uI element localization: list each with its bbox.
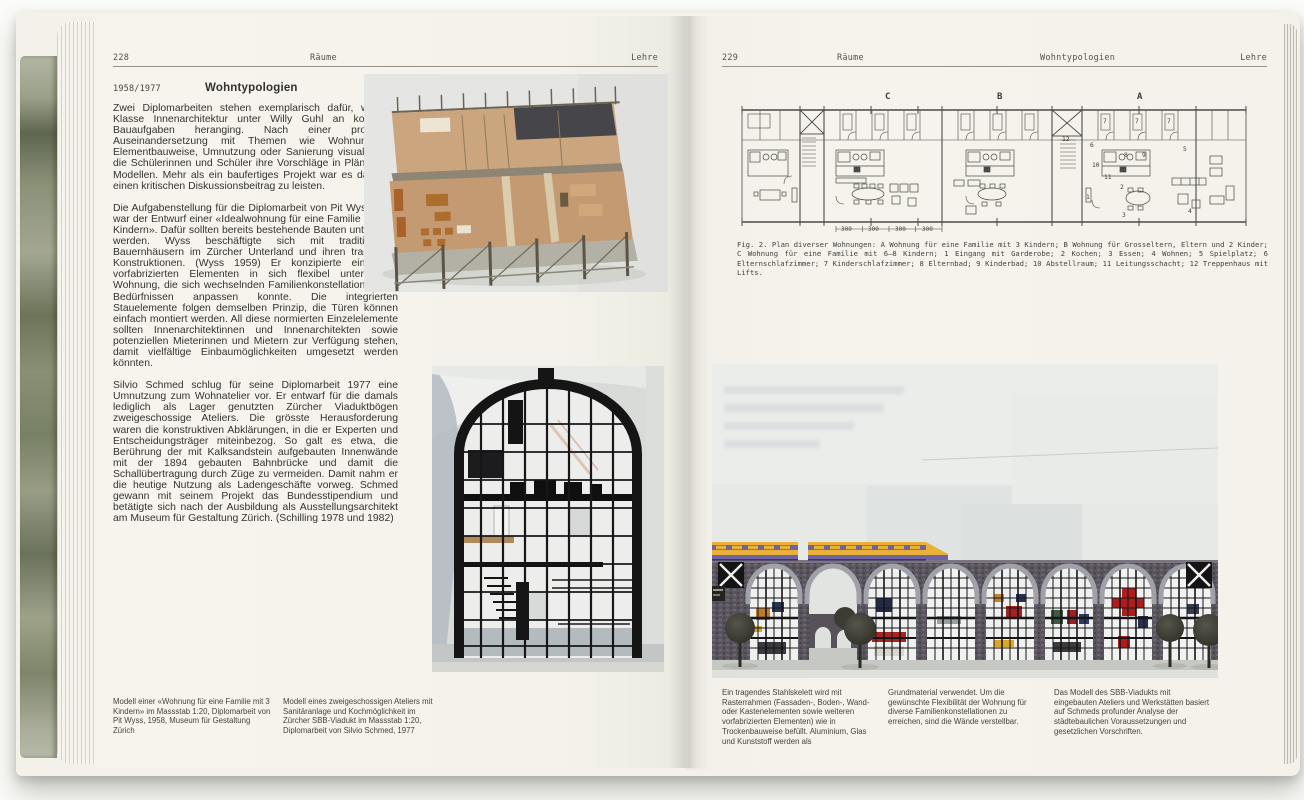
left-running-head-right: Lehre	[631, 53, 658, 63]
left-running-head-center: Räume	[310, 53, 337, 63]
body-text-column: Zwei Diplomarbeiten stehen exemplarisch …	[113, 103, 398, 535]
x-brace-left	[718, 562, 744, 588]
plan-room-number: 5	[1183, 146, 1187, 153]
x-brace-right	[1186, 562, 1212, 588]
plan-room-number: 8	[1124, 152, 1128, 159]
left-page-number: 228	[113, 53, 129, 63]
plan-room-number: 7	[1103, 118, 1107, 125]
left-page-stack-edge	[57, 22, 97, 764]
caption-flexibility: Grundmaterial verwendet. Um die gewünsch…	[888, 688, 1040, 727]
header-rule	[113, 66, 658, 67]
plan-room-number: 6	[1090, 142, 1094, 149]
body-paragraph-3: Silvio Schmed schlug für seine Diplomarb…	[113, 380, 398, 524]
plan-room-number: 12	[1062, 136, 1070, 143]
right-running-head-left: Räume	[837, 53, 864, 63]
article-date-label: 1958/1977	[113, 84, 161, 94]
caption-viaduct-model: Das Modell des SBB-Viadukts mit eingebau…	[1054, 688, 1210, 737]
atelier-window-illustration	[432, 366, 664, 672]
viaduct-model-illustration	[712, 364, 1218, 678]
caption-wyss-model: Modell einer «Wohnung für eine Familie m…	[113, 697, 271, 736]
plan-room-number: 11	[1104, 174, 1112, 181]
left-running-header: 228 Räume Lehre	[113, 53, 658, 69]
plan-section-label-c: C	[885, 92, 890, 102]
train	[712, 542, 948, 561]
body-paragraph-2: Die Aufgabenstellung für die Diplomarbei…	[113, 203, 398, 369]
figure-caption: Fig. 2. Plan diverser Wohnungen: A Wohnu…	[737, 240, 1268, 277]
plan-room-number: 9	[1142, 152, 1146, 159]
plan-dimension: 300	[868, 226, 879, 233]
plan-dimension: 300	[922, 226, 933, 233]
right-page-stack-edge	[1284, 24, 1297, 764]
plan-room-number: 10	[1092, 162, 1100, 169]
book-spread-photo: 228 Räume Lehre 1958/1977 Wohntypologien…	[0, 0, 1304, 800]
plan-room-number: 4	[1188, 208, 1192, 215]
plan-section-label-b: B	[997, 92, 1002, 102]
right-running-head-right: Lehre	[1240, 53, 1267, 63]
body-paragraph-1: Zwei Diplomarbeiten stehen exemplarisch …	[113, 103, 398, 192]
floor-plan-figure: C B A 12 7 7 7 6 5 10 8 9 11 2 1 3 4 300…	[740, 96, 1250, 238]
viaduct-model-photo	[712, 364, 1218, 678]
plan-room-number: 1	[1086, 194, 1090, 201]
plan-room-number: 2	[1120, 184, 1124, 191]
header-rule	[722, 66, 1267, 67]
plan-dimension: 300	[895, 226, 906, 233]
plan-dimension: 300	[841, 226, 852, 233]
caption-construction: Ein tragendes Stahlskelett wird mit Rast…	[722, 688, 874, 746]
book-fore-edge	[20, 56, 57, 758]
article-title: Wohntypologien	[205, 82, 298, 94]
plan-section-label-a: A	[1137, 92, 1142, 102]
plan-room-number: 7	[1135, 118, 1139, 125]
caption-schmed-model: Modell eines zweigeschossigen Ateliers m…	[283, 697, 441, 736]
apartment-model-photo	[364, 74, 668, 292]
right-page-number: 229	[722, 53, 738, 63]
plan-room-number: 7	[1167, 118, 1171, 125]
plan-room-number: 3	[1122, 212, 1126, 219]
apartment-model-illustration	[364, 74, 668, 292]
atelier-window-photo	[432, 366, 664, 672]
right-running-header: 229 Räume Wohntypologien Lehre	[722, 53, 1267, 69]
floor-plan-drawing	[740, 96, 1250, 238]
right-running-head-center: Wohntypologien	[1040, 53, 1115, 63]
